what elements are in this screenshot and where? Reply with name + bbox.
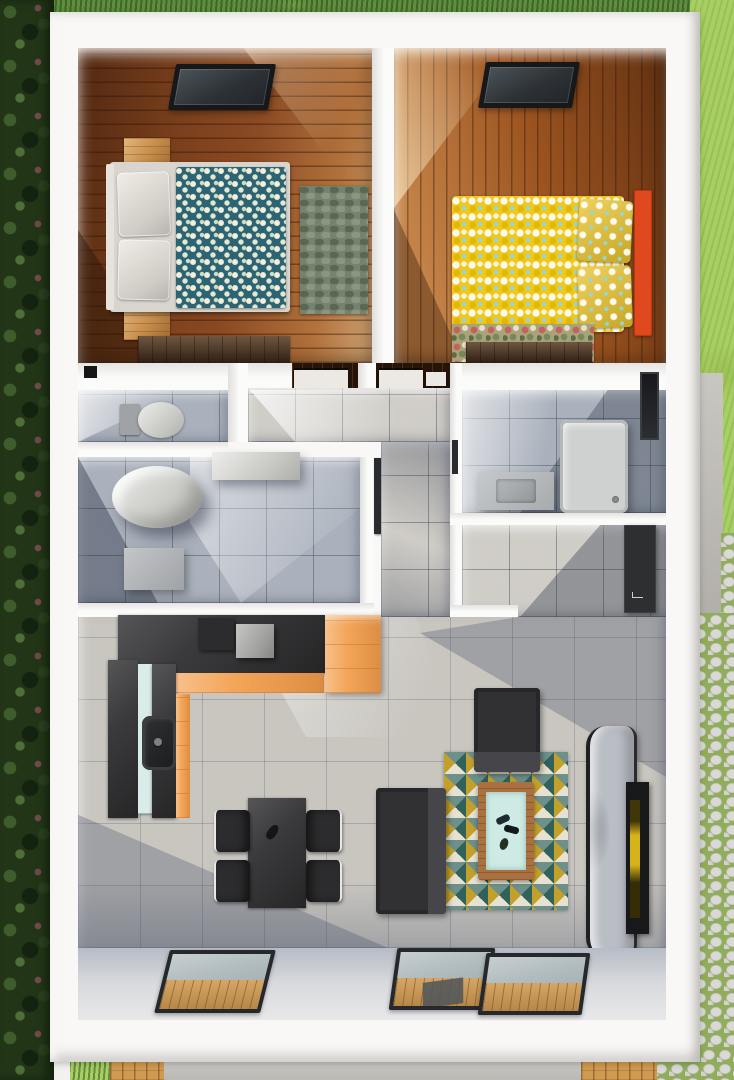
bedroom2-pillow-bottom <box>577 265 633 329</box>
nook-wardrobe-panel <box>624 525 656 613</box>
wardrobe-logo-icon <box>632 592 643 598</box>
bedroom1-skylight-glass <box>174 69 270 105</box>
kitchen-cabinet-front-left <box>176 694 190 818</box>
bedroom2-dresser <box>466 342 592 363</box>
window-right-pane2-deck-view <box>482 983 582 1011</box>
bedroom1-dresser <box>138 336 290 363</box>
vanity-shelf <box>212 452 300 480</box>
toilet-bowl <box>138 402 184 438</box>
dining-chair-left-2 <box>214 860 250 902</box>
bathroom2-left-wall <box>450 363 462 617</box>
bathroom2-window <box>640 372 659 440</box>
window-right-pane1-glass <box>393 952 491 1006</box>
window-left-glass <box>159 954 271 1009</box>
kitchen-appliance-dark <box>198 618 234 650</box>
sofa <box>376 788 446 914</box>
window-left <box>154 950 276 1013</box>
wall-vent-icon <box>84 366 97 378</box>
dining-chair-right-2 <box>306 860 342 902</box>
bedroom1-pillow-top <box>117 171 171 237</box>
tv-screen-picture <box>630 800 640 918</box>
floor-plan-render <box>0 0 734 1080</box>
bathroom2-bottom-wall <box>450 513 666 525</box>
hallway-lower-floor <box>381 442 450 617</box>
nook-stub-wall <box>450 605 518 617</box>
shower-drain-icon <box>612 496 619 503</box>
bathroom2-door-edge <box>452 440 458 474</box>
bedroom1-rug <box>300 186 368 314</box>
left-hedge <box>0 0 54 1080</box>
window-left-deck-view <box>159 980 264 1009</box>
window-right-pane1-deck-view <box>393 978 487 1006</box>
doorway-threshold <box>426 372 446 386</box>
bedroom1-skylight-icon <box>168 64 276 110</box>
toilet-cistern <box>120 404 140 435</box>
dining-chair-left-1 <box>214 810 250 852</box>
middle-wall-right <box>448 363 666 390</box>
dining-table <box>248 798 306 908</box>
bedroom1-headboard <box>106 164 114 310</box>
washbasin-basin <box>496 479 536 503</box>
bedroom2-headboard <box>634 190 652 336</box>
kitchen-counter-left <box>108 660 138 818</box>
bathroom1-cabinet <box>124 548 184 590</box>
armchair <box>474 688 540 772</box>
bedroom2-skylight-icon <box>478 62 580 108</box>
kitchen-cabinet-front-top <box>176 673 324 693</box>
kitchen-tall-cabinet <box>325 615 381 693</box>
doorway-jamb <box>358 363 376 390</box>
bedroom2-door-leaf <box>379 370 423 388</box>
window-right-pane-2 <box>478 953 591 1015</box>
bedroom2-skylight-glass <box>484 67 574 103</box>
bedroom1-duvet <box>176 167 286 308</box>
bathroom1-right-wall <box>360 457 374 617</box>
wc-bottom-wall <box>78 442 228 457</box>
kitchen-counter-cube <box>236 624 274 658</box>
deck-doormat <box>423 977 463 1006</box>
wc-right-wall <box>228 363 248 442</box>
kitchen-faucet-icon <box>154 738 162 746</box>
middle-wall-left <box>78 363 292 390</box>
bedroom2-pillow-top <box>576 199 633 264</box>
window-right-pane2-glass <box>482 957 586 1011</box>
bedroom1-pillow-bottom <box>117 239 171 300</box>
right-cobblestone-small <box>721 533 734 617</box>
bathroom1-door-edge <box>374 458 381 534</box>
hallway-upper-floor <box>248 388 450 442</box>
dining-chair-right-1 <box>306 810 342 852</box>
cylindrical-tub <box>112 466 202 528</box>
bedroom1-door-leaf <box>294 370 348 388</box>
bedroom-divider-wall <box>372 48 394 363</box>
